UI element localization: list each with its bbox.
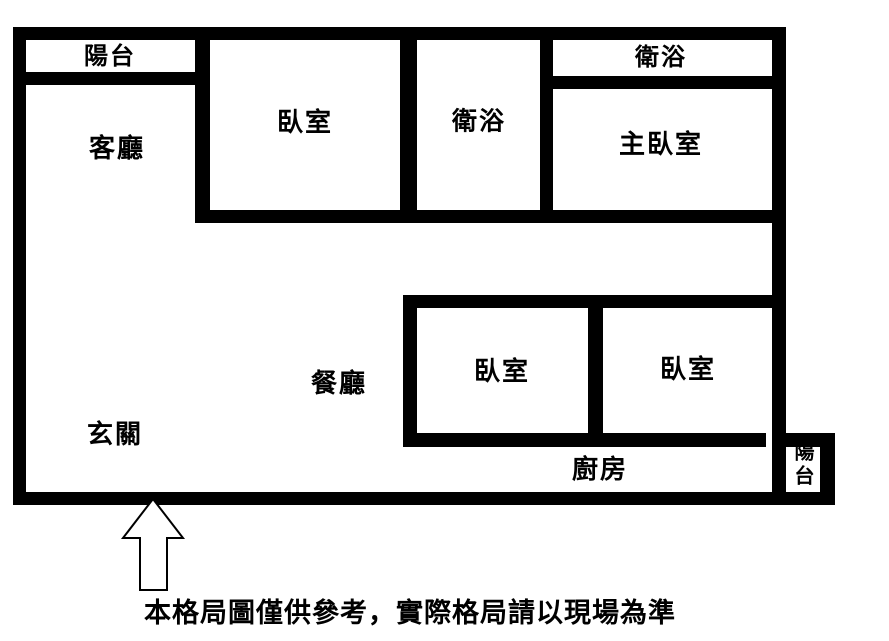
wall-bedroom-bathroom-divider bbox=[400, 27, 417, 223]
room-label-living-room: 客廳 bbox=[89, 135, 145, 161]
room-label-balcony-top: 陽台 bbox=[84, 45, 136, 69]
room-label-balcony-bottom-right: 陽台 bbox=[792, 441, 812, 489]
wall-bathroom-master-divider bbox=[540, 27, 553, 223]
wall-balcony-br-right bbox=[820, 433, 835, 505]
wall-bathroom-top-right-bottom bbox=[553, 76, 772, 89]
floor-plan: 陽台 客廳 臥室 衛浴 衛浴 主臥室 餐廳 臥室 臥室 玄關 廚房 陽台 本格局… bbox=[0, 0, 889, 641]
disclaimer-caption: 本格局圖僅供參考，實際格局請以現場為準 bbox=[144, 591, 676, 630]
wall-bedroom-block-divider bbox=[588, 295, 603, 447]
wall-living-bedroom-divider bbox=[195, 27, 210, 223]
room-label-kitchen: 廚房 bbox=[572, 456, 628, 482]
wall-bedroom-row-bottom bbox=[195, 210, 772, 223]
room-label-master-bedroom: 主臥室 bbox=[619, 131, 703, 157]
up-arrow-icon bbox=[120, 497, 186, 593]
room-label-entrance: 玄關 bbox=[87, 421, 143, 447]
room-label-bedroom-lower-right: 臥室 bbox=[660, 356, 716, 382]
wall-balcony-top-bottom bbox=[26, 72, 195, 85]
wall-outer-left bbox=[13, 27, 26, 505]
room-label-bedroom-top: 臥室 bbox=[277, 109, 333, 135]
wall-outer-right bbox=[772, 27, 786, 505]
room-label-bathroom-top-right: 衛浴 bbox=[635, 46, 687, 70]
room-label-bedroom-lower-left: 臥室 bbox=[474, 358, 530, 384]
wall-bedroom-block-left bbox=[403, 295, 417, 447]
room-label-bathroom-middle: 衛浴 bbox=[452, 110, 506, 135]
wall-bedroom-block-bottom bbox=[403, 433, 766, 447]
room-label-dining-room: 餐廳 bbox=[311, 370, 367, 396]
